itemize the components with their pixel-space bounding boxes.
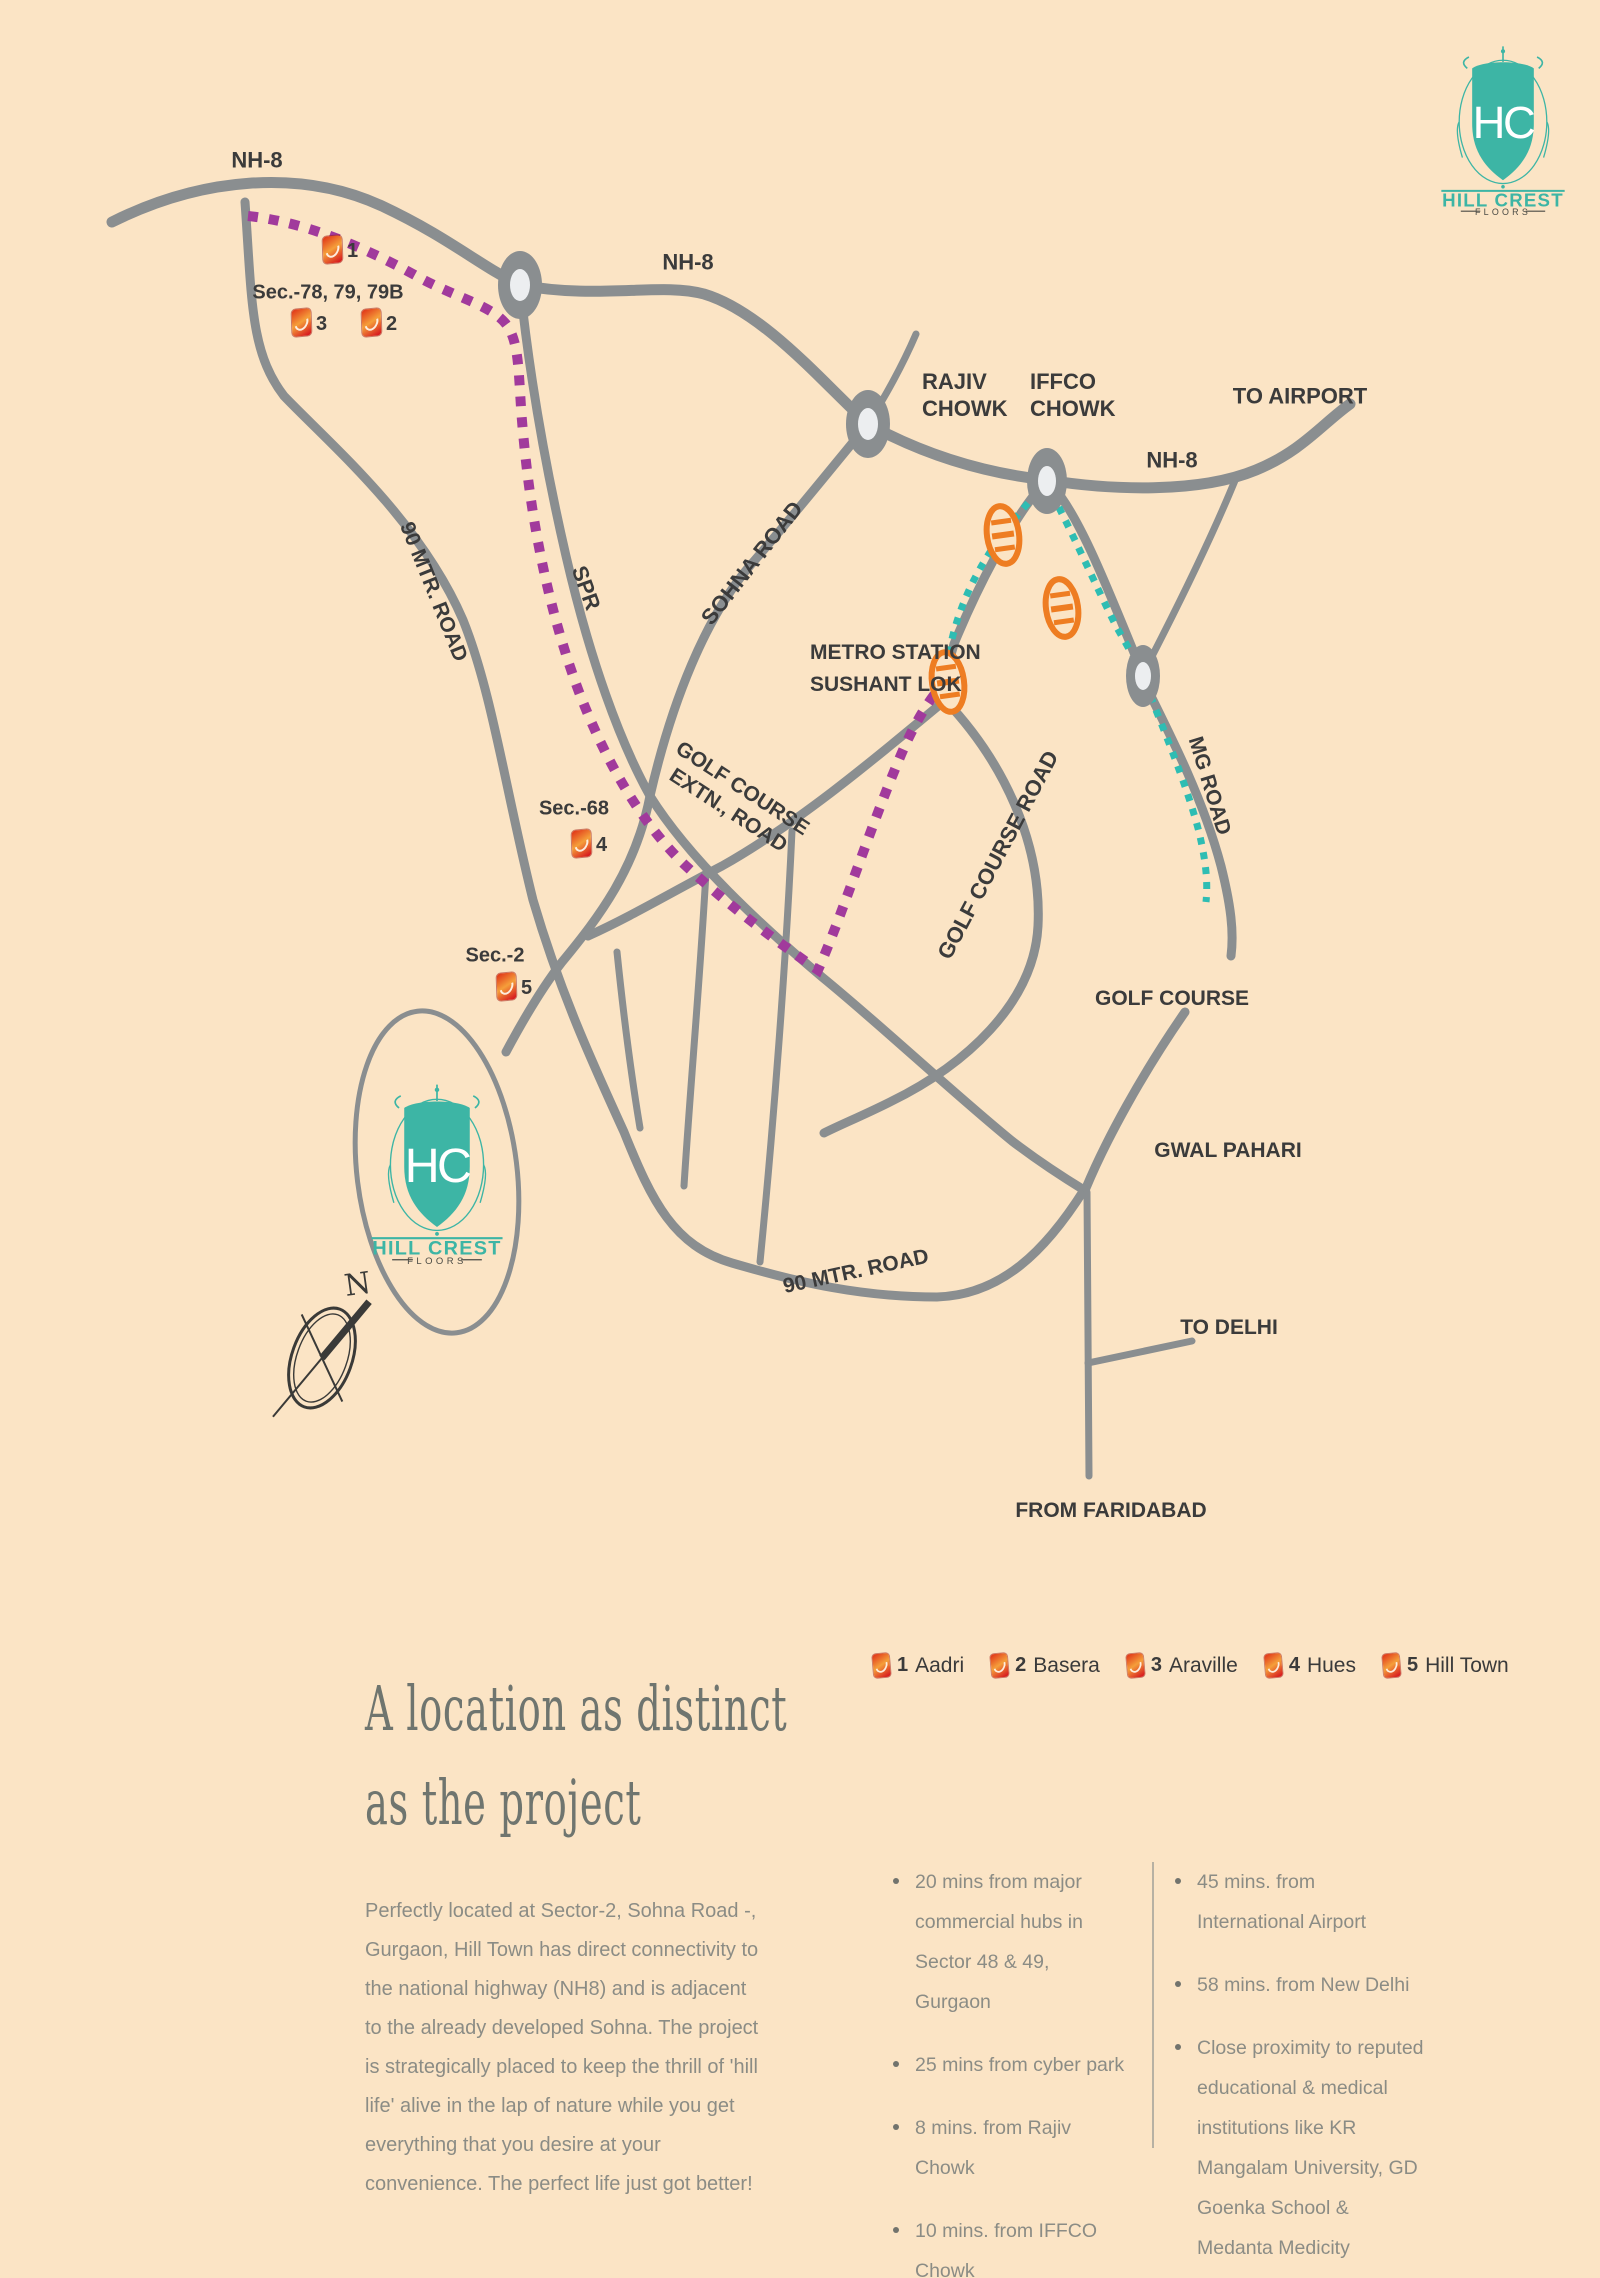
legend-item-basera: 2 Basera [990, 1652, 1100, 1679]
project-pin-icon [323, 235, 343, 264]
map-label-to-airport: TO AIRPORT [1233, 382, 1367, 410]
roundabout-iffco-chowk [1027, 448, 1067, 514]
legend: 1 Aadri 2 Basera 3 Araville 4 Hues 5 Hil… [872, 1652, 1509, 1679]
project-marker-4: 4 [572, 830, 607, 857]
legend-item-hues: 4 Hues [1264, 1652, 1356, 1679]
compass-icon: N [265, 1266, 377, 1438]
map-label-sec-78-79-79b: Sec.-78, 79, 79B [252, 281, 403, 306]
compass-n-label: N [342, 1266, 373, 1304]
bullet-item: 20 mins from major commercial hubs in Se… [891, 1862, 1129, 2022]
project-pin-icon [990, 1653, 1009, 1678]
map-label-nh8-mid: NH-8 [662, 248, 713, 276]
map-label-golf-course: GOLF COURSE [1095, 986, 1249, 1012]
bullet-item: Close proximity to reputed educational &… [1173, 2028, 1425, 2268]
map-label-sec-2: Sec.-2 [466, 944, 525, 969]
legend-item-hill-town: 5 Hill Town [1382, 1652, 1509, 1679]
project-pin-icon [497, 972, 517, 1001]
road-connector-1 [684, 872, 706, 1186]
brand-logo-site [368, 1082, 506, 1265]
project-pin-icon [292, 308, 312, 337]
metro-icon-2 [1042, 577, 1082, 639]
roundabout-mg-road [1126, 645, 1160, 707]
brand-logo-top-right [1438, 44, 1568, 216]
map-label-to-delhi: TO DELHI [1180, 1315, 1278, 1341]
map-label-sec-68: Sec.-68 [539, 797, 609, 822]
section-heading: A location as distinct as the project [365, 1662, 787, 1850]
project-pin-icon [872, 1653, 891, 1678]
map-label-iffco-chowk: IFFCO CHOWK [1030, 368, 1116, 422]
bullet-item: 25 mins from cyber park [891, 2045, 1129, 2085]
road-connector-2 [760, 831, 792, 1262]
bullet-item: 10 mins. from IFFCO Chowk [891, 2211, 1129, 2278]
map-label-rajiv-chowk: RAJIV CHOWK [922, 368, 1008, 422]
location-map-page: HC HILL CREST FLOORS [0, 0, 1600, 2278]
project-pin-icon [1126, 1653, 1145, 1678]
legend-item-aadri: 1 Aadri [872, 1652, 964, 1679]
road-map-graphic: HC HILL CREST FLOORS [0, 0, 1600, 1600]
map-label-metro-sushant-lok: METRO STATION SUSHANT LOK [810, 637, 981, 701]
project-marker-1: 1 [323, 236, 358, 263]
project-marker-2: 2 [362, 309, 397, 336]
bullet-item: 8 mins. from Rajiv Chowk [891, 2108, 1129, 2188]
intro-paragraph: Perfectly located at Sector-2, Sohna Roa… [365, 1892, 763, 2204]
road-to-delhi [1088, 1341, 1192, 1363]
map-label-nh8-west: NH-8 [231, 146, 282, 174]
bullet-list-distance: 45 mins. from International Airport 58 m… [1173, 1862, 1425, 2278]
road-nh8-mg [1148, 478, 1236, 664]
legend-item-araville: 3 Araville [1126, 1652, 1238, 1679]
bullet-list-commute: 20 mins from major commercial hubs in Se… [891, 1862, 1129, 2278]
roundabout-nh8-west [498, 251, 542, 319]
roundabout-rajiv-chowk [846, 390, 890, 458]
project-marker-5: 5 [497, 973, 532, 1000]
project-pin-icon [362, 308, 382, 337]
road-connector-3 [617, 952, 640, 1128]
map-label-gwal-pahari: GWAL PAHARI [1154, 1138, 1301, 1164]
project-pin-icon [1382, 1653, 1401, 1678]
route-metro-dotted-east [1052, 494, 1207, 902]
road-from-faridabad [1087, 1192, 1089, 1476]
project-pin-icon [572, 829, 592, 858]
map-label-nh8-east: NH-8 [1146, 446, 1197, 474]
bullet-item: 45 mins. from International Airport [1173, 1862, 1425, 1942]
project-pin-icon [1264, 1653, 1283, 1678]
project-marker-3: 3 [292, 309, 327, 336]
map-label-from-faridabad: FROM FARIDABAD [1015, 1498, 1206, 1524]
column-divider [1152, 1862, 1154, 2148]
bullet-item: 58 mins. from New Delhi [1173, 1965, 1425, 2005]
